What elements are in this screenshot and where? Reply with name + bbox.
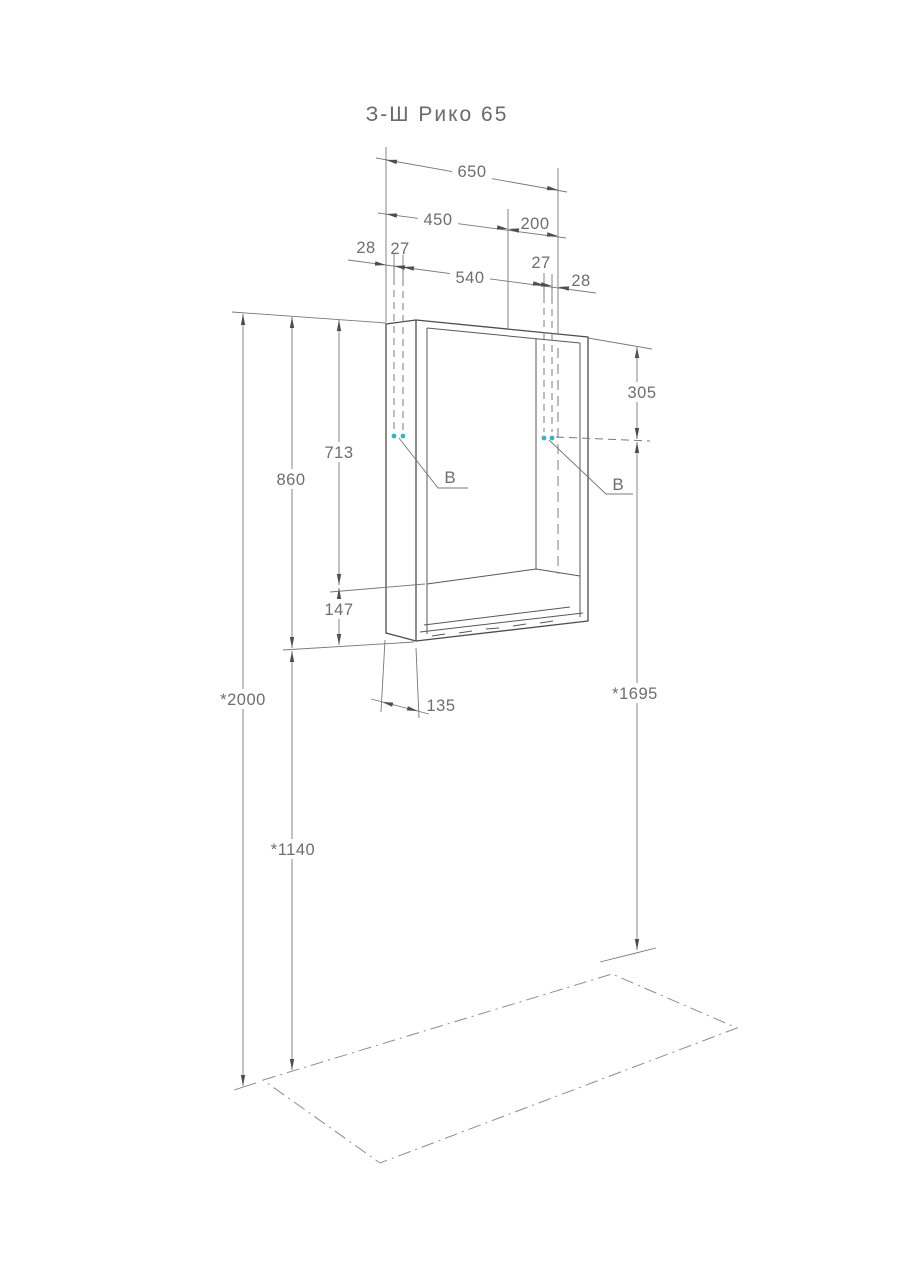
dim-body-height: 860 (276, 471, 305, 489)
cabinet-left-face-top (386, 320, 416, 324)
dim-left-hole-offset: 27 (390, 240, 409, 258)
mount-label-right: B (612, 475, 623, 494)
dim-left-edge-offset: 28 (356, 239, 375, 257)
tick-floor-right (600, 948, 656, 962)
mounting-dot (392, 434, 397, 439)
hidden-mounting-lines (394, 266, 650, 574)
dim-right-hole-offset: 27 (531, 254, 550, 272)
mount-level-dashed-line (556, 437, 650, 441)
floor-outline (263, 974, 737, 1163)
dim-total-width: 650 (457, 163, 486, 181)
technical-drawing: З-Ш Рико 65 650 450 200 28 27 540 27 28 … (0, 0, 900, 1274)
mounting-dot (542, 436, 547, 441)
ext-depth-back (381, 640, 385, 712)
door-bottom-edge (427, 569, 536, 584)
cabinet-top-edge (416, 320, 588, 337)
dim-door-height: 713 (324, 444, 353, 462)
ext-top-right (588, 338, 652, 349)
drawing-title: З-Ш Рико 65 (366, 103, 509, 126)
dim-floor-to-top: *2000 (220, 691, 266, 709)
mount-label-left: B (444, 468, 455, 487)
tick-floor-left (234, 1083, 256, 1090)
mount-leader-left (399, 438, 468, 488)
dim-depth: 135 (426, 697, 455, 715)
ext-top-left (232, 312, 386, 323)
drawing-page: З-Ш Рико 65 650 450 200 28 27 540 27 28 … (0, 0, 900, 1274)
mounting-dot (550, 436, 555, 441)
dim-shelf-opening-height: 147 (324, 601, 353, 619)
cabinet-left-face-bottom (386, 633, 416, 641)
cabinet-top-inner-line (427, 328, 580, 343)
dim-floor-to-bottom: *1140 (271, 841, 315, 859)
dim-hole-spacing: 540 (455, 269, 484, 287)
ext-cabinet-bottom (283, 642, 414, 650)
ext-door-bottom (330, 584, 425, 592)
cabinet-bottom-edge (416, 621, 588, 641)
dimension-lines (232, 147, 656, 1090)
dim-mount-height: *1695 (612, 685, 658, 703)
mounting-dot (401, 434, 406, 439)
dim-right-edge-offset: 28 (571, 272, 590, 290)
ext-depth-front (416, 648, 419, 718)
dim-top-to-mount: 305 (627, 384, 656, 402)
dimline-135 (371, 699, 429, 714)
shelf-board-back-edge (424, 607, 570, 625)
dim-shelf-width: 200 (520, 215, 549, 233)
text-masks (215, 161, 663, 859)
dim-door-width: 450 (423, 211, 452, 229)
